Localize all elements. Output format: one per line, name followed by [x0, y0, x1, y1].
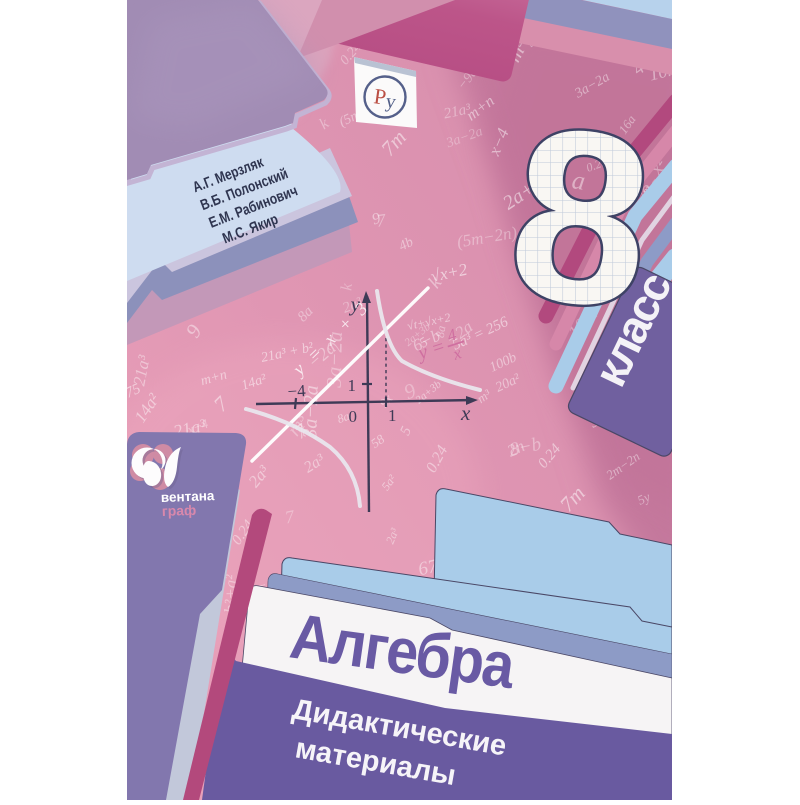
svg-text:x: x: [460, 401, 471, 425]
svg-text:1: 1: [348, 376, 357, 395]
svg-text:0: 0: [349, 407, 358, 426]
svg-text:граф: граф: [162, 502, 197, 519]
svg-text:1: 1: [388, 406, 397, 425]
svg-text:8: 8: [499, 74, 663, 361]
svg-text:−4: −4: [287, 381, 307, 401]
